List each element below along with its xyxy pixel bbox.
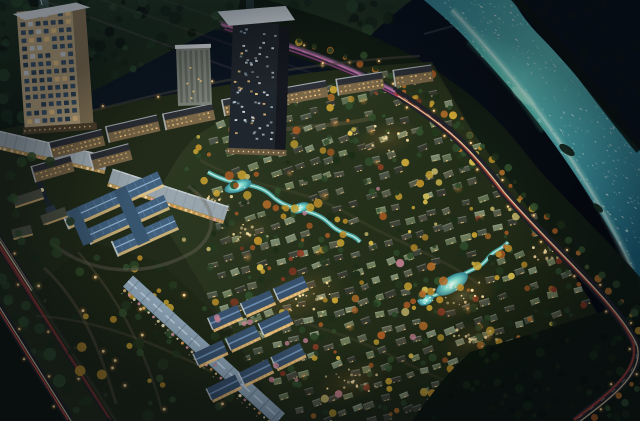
- scene-canvas: [0, 0, 640, 421]
- vignette: [0, 0, 640, 421]
- aerial-night-render: [0, 0, 640, 421]
- layer-vignette: [0, 0, 640, 421]
